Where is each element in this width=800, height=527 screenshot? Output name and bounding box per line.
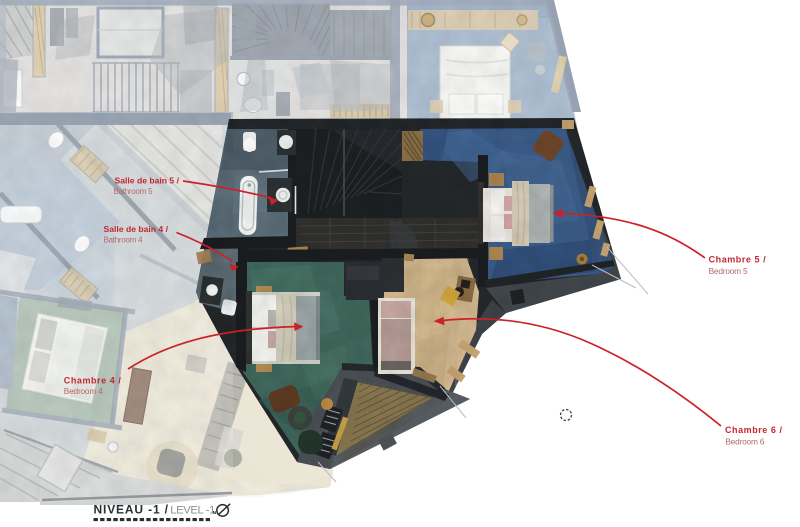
svg-text:LEVEL -1: LEVEL -1 (170, 505, 215, 517)
svg-text:Salle de bain 5 /: Salle de bain 5 / (115, 176, 180, 186)
svg-text:Chambre 6 /: Chambre 6 / (725, 425, 783, 435)
svg-text:Bedroom 5: Bedroom 5 (709, 266, 748, 276)
svg-text:Bedroom 4: Bedroom 4 (64, 386, 103, 396)
svg-text:NIVEAU -1 /: NIVEAU -1 / (94, 503, 169, 517)
svg-text:Bedroom 6: Bedroom 6 (725, 436, 764, 446)
svg-text:Bathroom 5: Bathroom 5 (114, 187, 154, 196)
svg-text:Bathroom 4: Bathroom 4 (104, 236, 144, 245)
svg-text:Salle de bain 4 /: Salle de bain 4 / (104, 224, 169, 234)
svg-text:Chambre 5 /: Chambre 5 / (709, 254, 767, 264)
svg-text:Chambre 4 /: Chambre 4 / (64, 376, 122, 386)
